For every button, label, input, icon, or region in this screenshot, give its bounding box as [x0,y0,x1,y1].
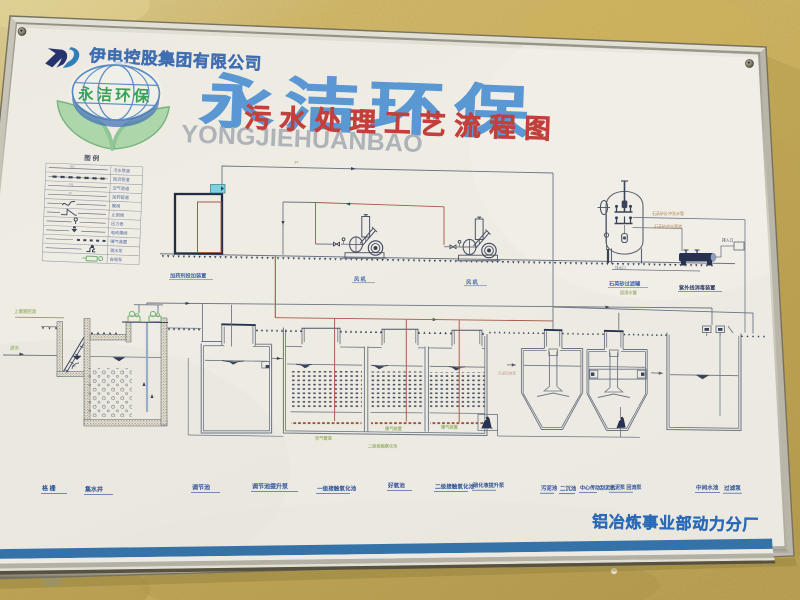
svg-text:污泥回流泵: 污泥回流泵 [498,371,516,376]
svg-text:石英砂进水管道: 石英砂进水管道 [654,223,682,229]
svg-text:调节池: 调节池 [192,484,210,492]
svg-text:风 机: 风 机 [466,278,479,286]
svg-text:60: 60 [72,364,76,368]
svg-text:过滤泵: 过滤泵 [724,484,741,492]
svg-text:格 栅: 格 栅 [42,485,56,493]
svg-text:进水: 进水 [10,345,20,352]
svg-text:排入口: 排入口 [722,238,734,243]
svg-text:污泥泵 回流泵: 污泥泵 回流泵 [610,484,642,491]
svg-text:调节池提升泵: 调节池提升泵 [252,483,289,491]
svg-text:曝气装置: 曝气装置 [385,425,403,432]
svg-text:曝气装置: 曝气装置 [441,424,459,431]
svg-text:排水口: 排水口 [615,265,626,270]
svg-text:回用水管: 回用水管 [620,289,638,296]
svg-text:好氧池: 好氧池 [387,482,405,490]
svg-text:中间水池: 中间水池 [696,484,719,492]
svg-text:石英砂过滤罐: 石英砂过滤罐 [608,280,641,288]
svg-text:上清液回流: 上清液回流 [14,308,37,315]
svg-text:二级接触氧化池: 二级接触氧化池 [435,483,475,491]
svg-text:空气管道: 空气管道 [315,435,333,442]
svg-text:集水井: 集水井 [84,486,103,494]
svg-text:石英砂反冲洗水管: 石英砂反冲洗水管 [652,210,684,216]
svg-text:一级接触氧化池: 一级接触氧化池 [317,485,357,493]
svg-text:紫外线消毒装置: 紫外线消毒装置 [679,284,715,292]
svg-text:二级接触氧化池: 二级接触氧化池 [368,443,398,450]
svg-text:硝化液提升泵: 硝化液提升泵 [473,481,505,489]
svg-text:WS: WS [70,164,75,168]
svg-text:污泥池: 污泥池 [541,484,558,492]
svg-text:JY: JY [294,160,299,165]
svg-text:风 机: 风 机 [354,275,367,283]
svg-text:二沉池: 二沉池 [560,485,577,493]
svg-text:JY: JY [69,191,73,195]
svg-text:加药剂投加装置: 加药剂投加装置 [169,272,206,280]
